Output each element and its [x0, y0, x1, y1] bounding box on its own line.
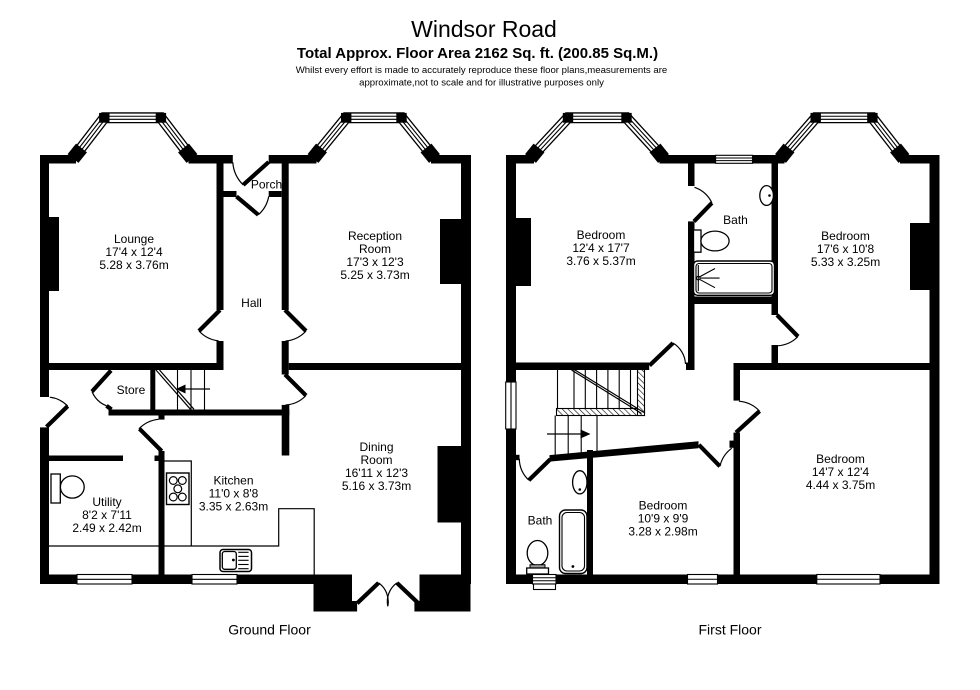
svg-text:4.44 x 3.75m: 4.44 x 3.75m [806, 478, 875, 492]
svg-text:Bedroom: Bedroom [639, 499, 688, 513]
svg-text:10'9 x 9'9: 10'9 x 9'9 [638, 512, 689, 526]
svg-text:Utility: Utility [92, 495, 121, 509]
svg-text:5.25 x 3.73m: 5.25 x 3.73m [340, 268, 409, 282]
svg-text:12'4 x 17'7: 12'4 x 17'7 [572, 241, 630, 255]
svg-text:11'0 x 8'8: 11'0 x 8'8 [209, 487, 259, 501]
svg-text:14'7 x 12'4: 14'7 x 12'4 [812, 465, 870, 479]
svg-text:16'11 x 12'3: 16'11 x 12'3 [345, 466, 408, 480]
svg-text:Bath: Bath [528, 514, 553, 528]
svg-text:Hall: Hall [241, 296, 262, 310]
svg-text:Lounge: Lounge [114, 232, 154, 246]
svg-text:Reception: Reception [348, 229, 402, 243]
svg-text:First Floor: First Floor [699, 622, 762, 638]
svg-text:3.76 x 5.37m: 3.76 x 5.37m [566, 254, 635, 268]
svg-text:3.35 x 2.63m: 3.35 x 2.63m [199, 500, 268, 514]
svg-text:Ground Floor: Ground Floor [228, 622, 311, 638]
svg-text:Store: Store [117, 383, 146, 397]
svg-text:17'6 x 10'8: 17'6 x 10'8 [817, 242, 875, 256]
svg-text:Porch: Porch [251, 178, 282, 192]
svg-text:17'3 x 12'3: 17'3 x 12'3 [346, 255, 404, 269]
svg-text:Windsor Road: Windsor Road [411, 16, 557, 42]
svg-text:Kitchen: Kitchen [213, 474, 253, 488]
svg-text:Dining: Dining [359, 440, 393, 454]
svg-text:Room: Room [360, 453, 392, 467]
svg-text:Bath: Bath [723, 213, 748, 227]
svg-text:Room: Room [359, 242, 391, 256]
svg-text:5.28 x 3.76m: 5.28 x 3.76m [99, 258, 168, 272]
svg-text:5.33 x 3.25m: 5.33 x 3.25m [811, 255, 880, 269]
svg-text:Bedroom: Bedroom [577, 228, 626, 242]
svg-text:Total Approx. Floor Area 2162: Total Approx. Floor Area 2162 Sq. ft. (2… [297, 45, 658, 62]
svg-text:Bedroom: Bedroom [821, 229, 870, 243]
svg-text:Bedroom: Bedroom [816, 452, 865, 466]
svg-text:5.16 x 3.73m: 5.16 x 3.73m [342, 479, 411, 493]
svg-text:17'4 x 12'4: 17'4 x 12'4 [105, 245, 163, 259]
svg-text:Whilst every effort is made to: Whilst every effort is made to accuratel… [296, 65, 668, 76]
svg-text:approximate,not to scale and f: approximate,not to scale and for illustr… [359, 78, 604, 89]
svg-text:8'2 x 7'11: 8'2 x 7'11 [82, 508, 132, 522]
svg-text:3.28 x 2.98m: 3.28 x 2.98m [628, 525, 697, 539]
svg-text:2.49 x 2.42m: 2.49 x 2.42m [72, 521, 141, 535]
